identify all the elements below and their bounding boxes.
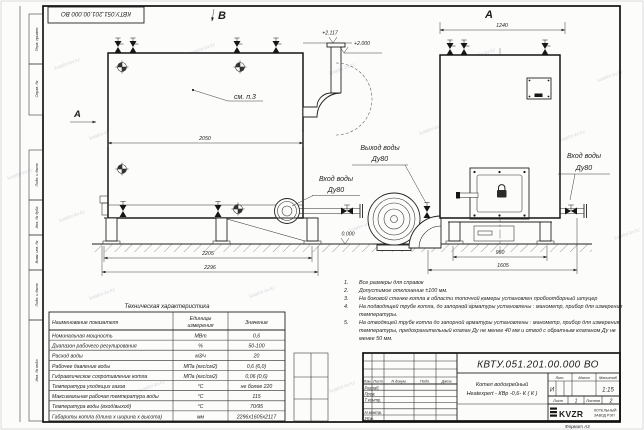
cell: Расход воды (52, 354, 83, 360)
note-text: менее 50 мм. (359, 336, 393, 342)
lit-value: И (550, 388, 555, 394)
cell: 0,6 (253, 334, 260, 340)
cell: МВт (194, 334, 207, 340)
svg-text:Вход воды: Вход воды (567, 152, 602, 160)
cell: МПа (кгс/см2) (184, 374, 218, 380)
note-num: 2. (343, 288, 349, 294)
svg-text:2296: 2296 (203, 265, 216, 271)
margin-field-label: Подп. и дата (35, 283, 39, 306)
tech-table-title: Техническая характеристика (125, 304, 211, 310)
cell: 115 (252, 394, 260, 400)
note-num: 4. (344, 304, 349, 310)
cell: м3/ч (195, 354, 206, 360)
door-handle (456, 192, 478, 199)
format-label: Формат А3 (565, 424, 590, 429)
col-ndoc: N докум. (391, 379, 406, 383)
cell: 70/95 (250, 404, 263, 410)
cell: % (198, 344, 203, 350)
cell: °С (198, 404, 204, 410)
margin-field-label: Инв. № подл. (35, 359, 39, 382)
col-izm: Изм. (363, 379, 371, 383)
note-text: температуры. (359, 312, 398, 318)
company-name-1: КОТЕЛЬНЫЙ (594, 409, 617, 413)
cell: не более 220 (241, 384, 273, 390)
svg-text:0.000: 0.000 (342, 232, 355, 238)
svg-text:2205: 2205 (201, 251, 214, 257)
company-name-2: ЗАВОД РЭП (594, 414, 615, 418)
col-header: Значение (245, 320, 268, 326)
note-num: 1. (344, 280, 349, 286)
view-a-top-label: А (484, 9, 493, 21)
margin-field-label: Взам. инв. № (35, 241, 39, 264)
row-razrab: Разраб. (365, 385, 380, 390)
margin-field-label: Перв. примен. (35, 27, 39, 52)
cell: Габариты котла (длина х ширина х высота) (52, 414, 162, 420)
cell: Номинальная мощность (52, 334, 113, 340)
note-text: Все размеры для справок (359, 280, 424, 286)
note-text: Допустимое отклонение ±100 мм. (358, 288, 448, 294)
cell: Температура воды (вход/выход) (52, 404, 131, 410)
cell: Диапазон рабочего регулирования (51, 344, 137, 350)
drawing-sheet: kotelni-kv.kz kotelni-kv.kz kotelni-kv.k… (0, 0, 644, 430)
note-text: температуры, предохранительный клапан Ду… (359, 327, 616, 334)
cell: 2296х1605х2117 (236, 414, 278, 420)
col-header: Единицы (190, 316, 212, 322)
doc-number: КВТУ.051.201.00.000 ВО (477, 360, 599, 371)
svg-text:1605: 1605 (497, 263, 509, 269)
margin-field-label: Подп. и дата (35, 163, 39, 186)
cell: °С (198, 384, 204, 390)
boiler-drawing-canvas: kotelni-kv.kz kotelni-kv.kz kotelni-kv.k… (0, 0, 644, 430)
cell: 0,6 (6,0) (247, 364, 267, 370)
col-header: Наименование показателя (52, 320, 118, 326)
note-num: 3. (344, 296, 349, 302)
svg-text:+2.117: +2.117 (322, 31, 339, 37)
view-b-label: В (218, 10, 226, 22)
cell: Температура уходящих газов (52, 384, 125, 390)
note-text: На боковой стенке котла в области топочн… (359, 295, 597, 302)
mass-label: Масса (578, 376, 589, 380)
col-data: Дата (440, 379, 451, 383)
svg-text:+2.000: +2.000 (354, 41, 370, 47)
svg-text:1240: 1240 (496, 23, 508, 29)
cell: Гидравлическое сопротивление котла (52, 374, 147, 380)
product-name-1: Котел водогрейный (476, 381, 528, 388)
sheet-label: Лист (552, 399, 563, 403)
row-utv: Утв. (365, 416, 375, 421)
row-tkontr: Т.контр. (365, 398, 382, 403)
top-stamp-number: КВТУ.051.201.00.000 ВО (61, 10, 131, 17)
margin-field-label: Инв. № дубл. (35, 206, 39, 229)
cell: мм (197, 414, 205, 420)
svg-text:960: 960 (496, 250, 505, 256)
col-podp: Подп. (420, 379, 430, 383)
cell: Максимальная рабочая температура воды (52, 394, 159, 400)
cell: °С (198, 394, 204, 400)
sheets-value: 2 (609, 399, 613, 405)
svg-text:Ду80: Ду80 (371, 156, 388, 163)
cell: 20 (253, 354, 260, 360)
note-text: На подводящей трубе котла, до запорной а… (359, 303, 623, 310)
note-num: 5. (344, 320, 349, 326)
inlet-flange (275, 199, 300, 224)
logo-text: KVZR (559, 409, 583, 419)
svg-text:Ду80: Ду80 (327, 187, 344, 194)
row-prov: Пров. (365, 392, 376, 397)
note-text: На отводящей трубе котла до запорной арм… (359, 319, 620, 326)
cell: Рабочее давление воды (52, 364, 110, 370)
svg-text:Вход воды: Вход воды (319, 175, 354, 183)
svg-text:2050: 2050 (198, 136, 211, 142)
svg-text:Ду80: Ду80 (575, 165, 592, 172)
scale-label: Масштаб (599, 376, 618, 380)
cell: 0,06 (0,6) (245, 374, 267, 380)
scale-value: 1:15 (602, 388, 614, 394)
col-header: измерения (188, 323, 214, 329)
margin-field-label: Справ. № (35, 81, 39, 98)
sheets-label: Листов (585, 399, 600, 403)
product-name-2: Heatexpert - КВр -0,6- К ( К ) (467, 391, 538, 397)
row-nkontr: Н.контр. (365, 410, 383, 415)
view-a-side-label: А (73, 109, 81, 120)
lit-label: Лит. (555, 376, 565, 380)
cell: МПа (кгс/см2) (184, 364, 218, 370)
see-note-text: см. п.3 (234, 94, 256, 101)
sheet-value: 1 (575, 399, 578, 405)
col-list: Лист (372, 379, 383, 383)
ground (92, 244, 592, 252)
svg-text:Выход воды: Выход воды (360, 144, 400, 152)
cell: 50-100 (248, 344, 264, 350)
